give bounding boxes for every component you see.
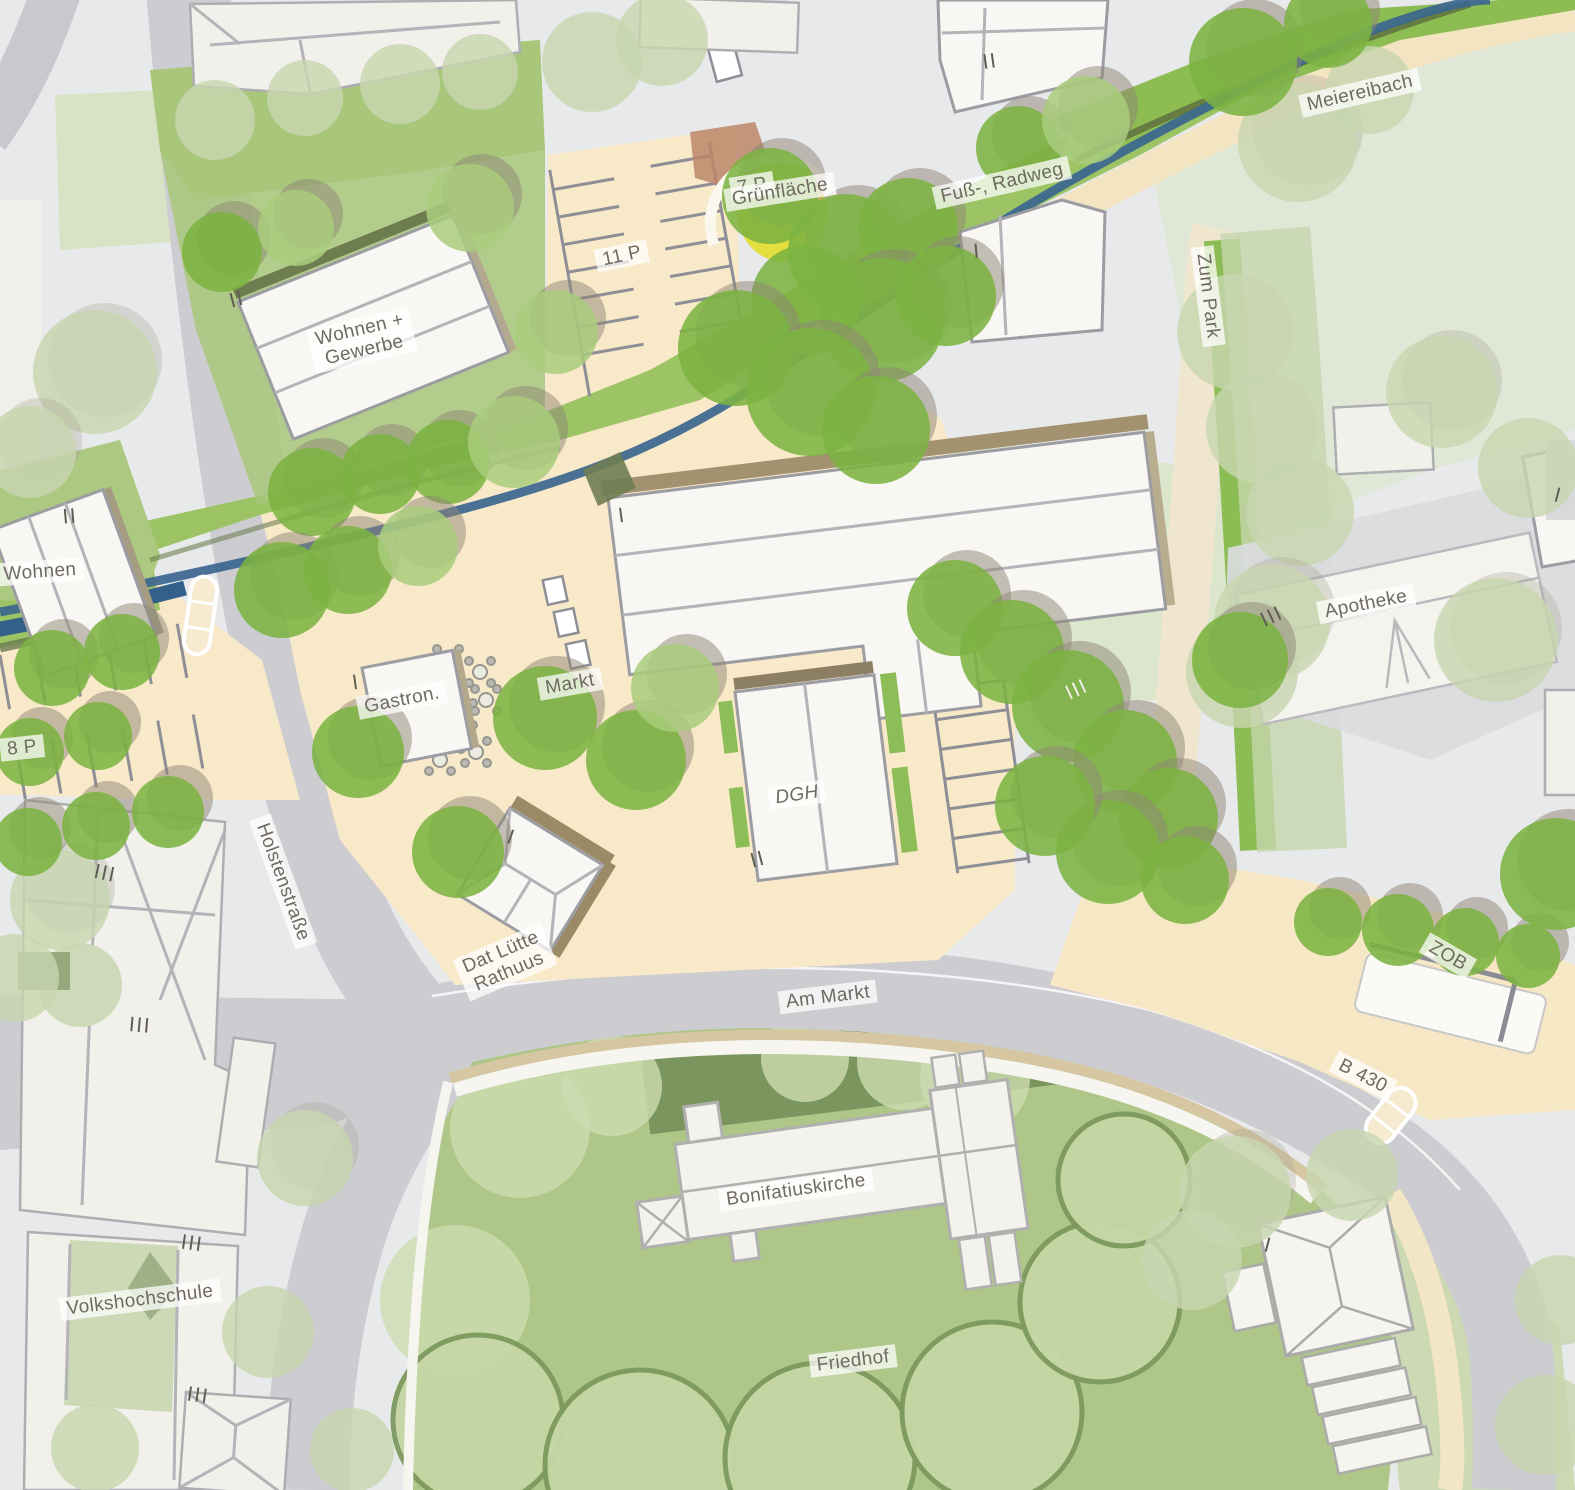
site-plan-map: 7 PGrünflächeFuß-, RadwegMeiereibachZum … [0, 0, 1575, 1490]
map-artwork [0, 0, 1575, 1490]
